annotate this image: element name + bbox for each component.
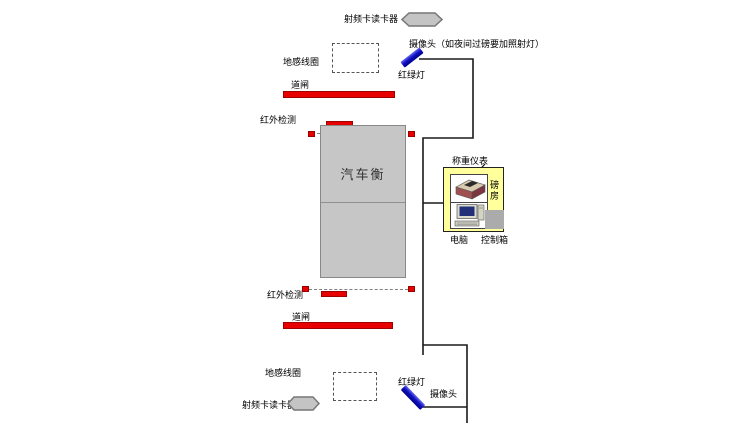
barrier-top-bar — [283, 91, 395, 98]
weighing-meter-label: 称重仪表 — [452, 156, 488, 166]
camera-top-label: 摄像头（如夜间过磅要加照射灯） — [409, 39, 544, 49]
ground-loop-top-coil — [332, 43, 379, 73]
computer-label: 电脑 — [450, 235, 468, 245]
infrared-bottom-emitter-bar — [321, 291, 347, 297]
weigh-room-label: 磅房 — [490, 180, 501, 201]
infrared-top-sensor-left — [308, 131, 315, 137]
control-box-label: 控制箱 — [481, 235, 508, 245]
scale-section-divider — [321, 202, 405, 203]
truck-scale-system-diagram: 射频卡读卡器 摄像头（如夜间过磅要加照射灯） 地感线圈 红绿灯 道闸 红外检测 … — [0, 0, 746, 428]
infrared-bottom-sensor-right — [408, 286, 415, 292]
wire-trunk-to-bottom — [423, 345, 467, 423]
rfid-reader-top-label: 射频卡读卡器 — [344, 14, 398, 24]
ground-loop-bottom-coil — [333, 372, 377, 401]
traffic-light-bottom-icon — [401, 385, 425, 410]
traffic-light-top-label: 红绿灯 — [398, 70, 425, 80]
infrared-bottom-sensor-left — [302, 286, 309, 292]
infrared-top-sensor-right — [408, 131, 415, 137]
traffic-light-top-icon — [400, 47, 423, 67]
rfid-reader-bottom-icon — [287, 396, 320, 411]
truck-scale-platform: 汽车衡 — [320, 125, 406, 278]
ground-loop-bottom-label: 地感线圈 — [265, 368, 301, 378]
cabinet-divider — [451, 202, 487, 203]
traffic-light-bottom-label: 红绿灯 — [398, 377, 425, 387]
infrared-bottom-beam — [309, 289, 408, 290]
barrier-top-label: 道闸 — [291, 80, 309, 90]
ground-loop-top-label: 地感线圈 — [283, 57, 319, 67]
barrier-bottom-label: 道闸 — [292, 312, 310, 322]
control-box — [485, 210, 504, 229]
barrier-bottom-bar — [283, 322, 393, 329]
computer-icon — [453, 204, 486, 228]
truck-scale-label: 汽车衡 — [321, 164, 405, 183]
weigh-house: 磅房 — [443, 167, 504, 232]
infrared-top-label: 红外检测 — [260, 115, 296, 125]
weight-indicator-icon — [452, 176, 488, 202]
camera-bottom-label: 摄像头 — [430, 389, 457, 399]
infrared-bottom-label: 红外检测 — [267, 290, 303, 300]
equipment-cabinet — [450, 174, 488, 229]
rfid-reader-top-icon — [401, 12, 443, 27]
